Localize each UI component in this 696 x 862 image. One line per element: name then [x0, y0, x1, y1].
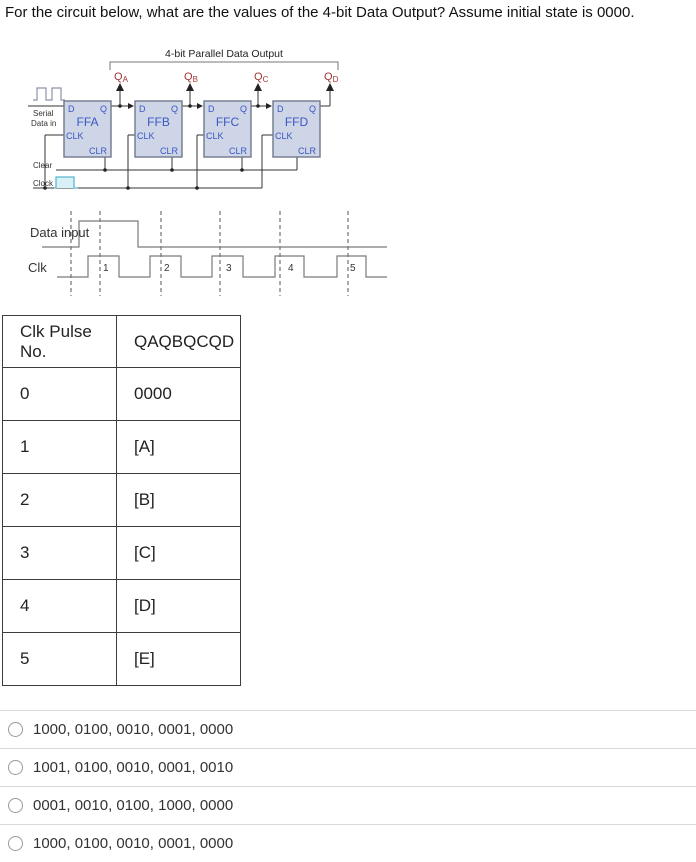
pulse-number-4: 4 [288, 263, 294, 274]
clear-label: Clear [33, 161, 52, 170]
answer-option-3[interactable]: 0001, 0010, 0100, 1000, 0000 [0, 786, 696, 824]
header-clk-pulse: Clk Pulse No. [3, 316, 117, 368]
flipflop-ffa: D Q FFA CLK CLR [64, 101, 111, 157]
pin-q: Q [171, 104, 178, 114]
qa-arrow-icon [116, 83, 124, 91]
answer-option-2[interactable]: 1001, 0100, 0010, 0001, 0010 [0, 748, 696, 786]
qc-arrow-icon [254, 83, 262, 91]
answer-option-4[interactable]: 1000, 0100, 0010, 0001, 0000 [0, 824, 696, 862]
truth-table: Clk Pulse No. QAQBQCQD 0 0000 1 [A] 2 [B… [2, 315, 241, 686]
qc-label: QC [254, 71, 269, 84]
pin-d: D [68, 104, 75, 114]
serial-label-line1: Serial [33, 109, 54, 118]
table-row: 5 [E] [3, 633, 241, 686]
serial-data-waveform [33, 88, 65, 100]
pin-q: Q [309, 104, 316, 114]
cell-pulse-no: 3 [3, 527, 117, 580]
cell-pulse-no: 1 [3, 421, 117, 474]
data-input-label: Data input [30, 225, 90, 240]
table-row: 0 0000 [3, 368, 241, 421]
question-text: For the circuit below, what are the valu… [5, 4, 693, 21]
ff-name: FFC [216, 115, 240, 129]
d-in-arrow-icon [197, 103, 203, 109]
ff-name: FFA [76, 115, 98, 129]
pin-clk: CLK [137, 131, 155, 141]
cell-q-value: [A] [117, 421, 241, 474]
qd-label: QD [324, 71, 339, 84]
pulse-number-2: 2 [164, 263, 170, 274]
clk-label: Clk [28, 260, 47, 275]
option-label: 0001, 0010, 0100, 1000, 0000 [33, 797, 233, 814]
timing-diagram: Data input Clk 1 2 3 4 5 [0, 205, 430, 305]
qd-arrow-icon [326, 83, 334, 91]
data-input-waveform [42, 221, 387, 247]
output-bracket [110, 62, 338, 70]
pin-clk: CLK [206, 131, 224, 141]
pulse-number-5: 5 [350, 263, 356, 274]
pin-clr: CLR [298, 146, 317, 156]
qb-arrow-icon [186, 83, 194, 91]
pulse-number-1: 1 [103, 263, 109, 274]
table-row: 4 [D] [3, 580, 241, 633]
radio-button[interactable] [8, 798, 23, 813]
answer-option-1[interactable]: 1000, 0100, 0010, 0001, 0000 [0, 710, 696, 748]
table-row: 1 [A] [3, 421, 241, 474]
pin-clk: CLK [66, 131, 84, 141]
pin-d: D [139, 104, 146, 114]
flipflop-ffc: D Q FFC CLK CLR [204, 101, 251, 157]
option-label: 1000, 0100, 0010, 0001, 0000 [33, 721, 233, 738]
flipflop-ffb: D Q FFB CLK CLR [135, 101, 182, 157]
qa-label: QA [114, 71, 129, 84]
pin-clr: CLR [160, 146, 179, 156]
d-in-arrow-icon [266, 103, 272, 109]
dashed-markers [71, 211, 348, 296]
pin-d: D [208, 104, 215, 114]
answer-options: 1000, 0100, 0010, 0001, 0000 1001, 0100,… [0, 710, 696, 862]
cell-q-value: [E] [117, 633, 241, 686]
pin-clr: CLR [229, 146, 248, 156]
option-label: 1001, 0100, 0010, 0001, 0010 [33, 759, 233, 776]
pulse-numbers: 1 2 3 4 5 [103, 263, 356, 274]
circuit-diagram: 4-bit Parallel Data Output QA QB QC QD S… [0, 45, 400, 205]
table-header-row: Clk Pulse No. QAQBQCQD [3, 316, 241, 368]
pulse-number-3: 3 [226, 263, 232, 274]
clock-label: Clock [33, 179, 54, 188]
cell-pulse-no: 2 [3, 474, 117, 527]
parallel-output-title: 4-bit Parallel Data Output [165, 48, 283, 60]
cell-q-value: 0000 [117, 368, 241, 421]
d-in-arrow-icon [128, 103, 134, 109]
ff-name: FFB [147, 115, 170, 129]
qb-label: QB [184, 71, 198, 84]
pin-q: Q [240, 104, 247, 114]
pin-d: D [277, 104, 284, 114]
pin-clr: CLR [89, 146, 108, 156]
cell-q-value: [D] [117, 580, 241, 633]
pin-clk: CLK [275, 131, 293, 141]
table-row: 3 [C] [3, 527, 241, 580]
cell-pulse-no: 5 [3, 633, 117, 686]
ff-name: FFD [285, 115, 309, 129]
radio-button[interactable] [8, 760, 23, 775]
pin-q: Q [100, 104, 107, 114]
header-q-outputs: QAQBQCQD [117, 316, 241, 368]
cell-pulse-no: 4 [3, 580, 117, 633]
flipflop-ffd: D Q FFD CLK CLR [273, 101, 320, 157]
cell-q-value: [B] [117, 474, 241, 527]
table-row: 2 [B] [3, 474, 241, 527]
radio-button[interactable] [8, 722, 23, 737]
cell-pulse-no: 0 [3, 368, 117, 421]
option-label: 1000, 0100, 0010, 0001, 0000 [33, 835, 233, 852]
radio-button[interactable] [8, 836, 23, 851]
cell-q-value: [C] [117, 527, 241, 580]
serial-label-line2: Data in [31, 119, 56, 128]
clock-pulse-waveform [54, 177, 78, 188]
